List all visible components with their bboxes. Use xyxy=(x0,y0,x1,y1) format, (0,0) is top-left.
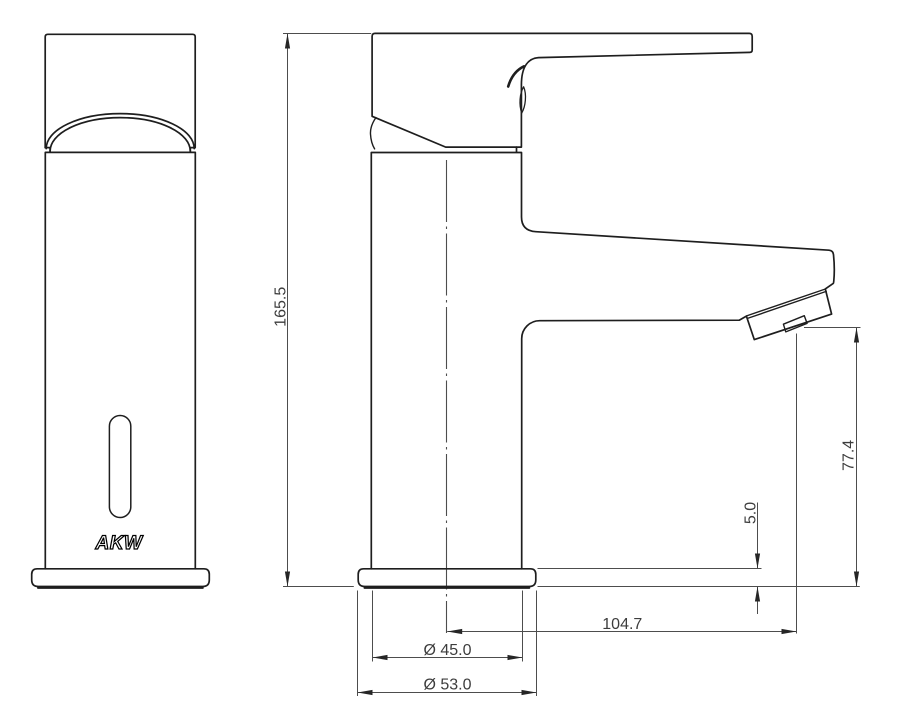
svg-text:5.0: 5.0 xyxy=(743,502,760,524)
svg-text:AKW: AKW xyxy=(95,533,144,554)
svg-text:77.4: 77.4 xyxy=(841,440,858,471)
svg-text:Ø 45.0: Ø 45.0 xyxy=(423,642,471,659)
svg-text:165.5: 165.5 xyxy=(272,287,289,327)
svg-text:Ø 53.0: Ø 53.0 xyxy=(423,677,471,694)
svg-text:104.7: 104.7 xyxy=(602,616,642,633)
